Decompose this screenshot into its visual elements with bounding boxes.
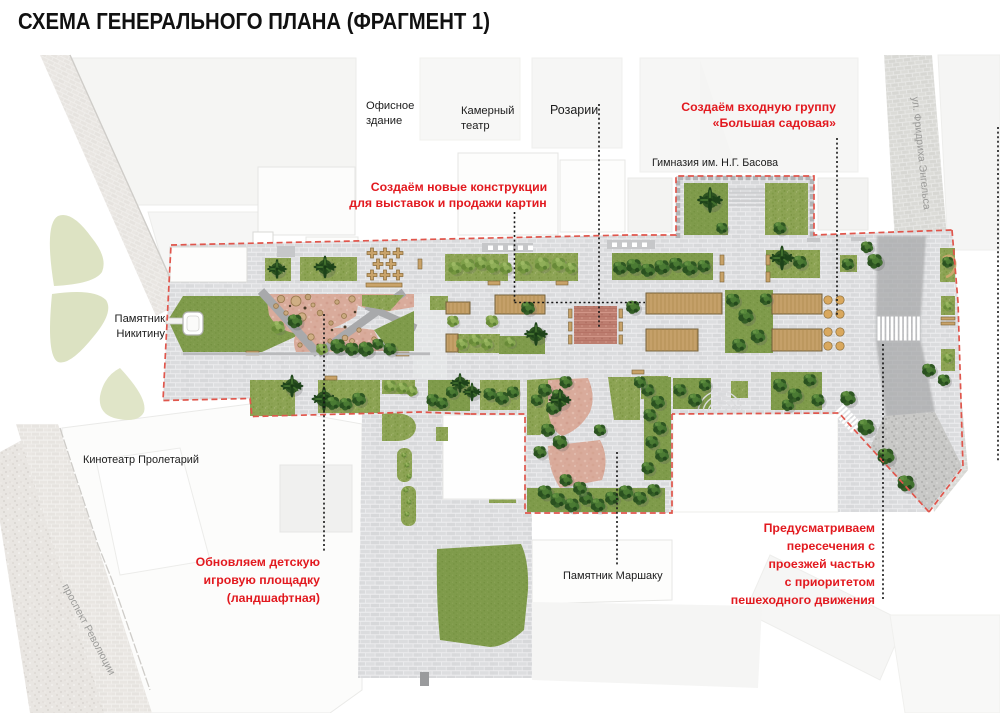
svg-text:с приоритетом: с приоритетом xyxy=(785,575,875,589)
svg-text:пересечения с: пересечения с xyxy=(787,539,875,553)
svg-text:здание: здание xyxy=(366,115,402,127)
svg-text:СХЕМА ГЕНЕРАЛЬНОГО ПЛАНА (ФРАГ: СХЕМА ГЕНЕРАЛЬНОГО ПЛАНА (ФРАГМЕНТ 1) xyxy=(18,8,490,34)
svg-text:Создаём новые конструкции: Создаём новые конструкции xyxy=(371,180,547,194)
svg-text:(ландшафтная): (ландшафтная) xyxy=(227,591,320,605)
svg-text:Обновляем детскую: Обновляем детскую xyxy=(196,555,321,569)
svg-text:Памятник Маршаку: Памятник Маршаку xyxy=(563,570,663,582)
svg-text:Офисное: Офисное xyxy=(366,100,414,112)
svg-text:Розарии: Розарии xyxy=(550,103,598,117)
svg-text:«Большая садовая»: «Большая садовая» xyxy=(713,116,836,130)
svg-text:Гимназия им. Н.Г. Басова: Гимназия им. Н.Г. Басова xyxy=(652,157,778,169)
svg-text:Предусматриваем: Предусматриваем xyxy=(764,521,875,535)
svg-text:проезжей частью: проезжей частью xyxy=(768,557,875,571)
svg-text:для выставок и продажи картин: для выставок и продажи картин xyxy=(349,196,546,210)
svg-text:Камерный: Камерный xyxy=(461,105,514,117)
svg-text:Создаём входную группу: Создаём входную группу xyxy=(681,100,836,114)
svg-text:Памятник: Памятник xyxy=(115,313,166,325)
svg-text:Никитину: Никитину xyxy=(116,328,165,340)
svg-text:пешеходного движения: пешеходного движения xyxy=(731,593,875,607)
svg-text:игровую площадку: игровую площадку xyxy=(204,573,321,587)
svg-text:Кинотеатр Пролетарий: Кинотеатр Пролетарий xyxy=(83,454,199,466)
svg-text:театр: театр xyxy=(461,120,490,132)
